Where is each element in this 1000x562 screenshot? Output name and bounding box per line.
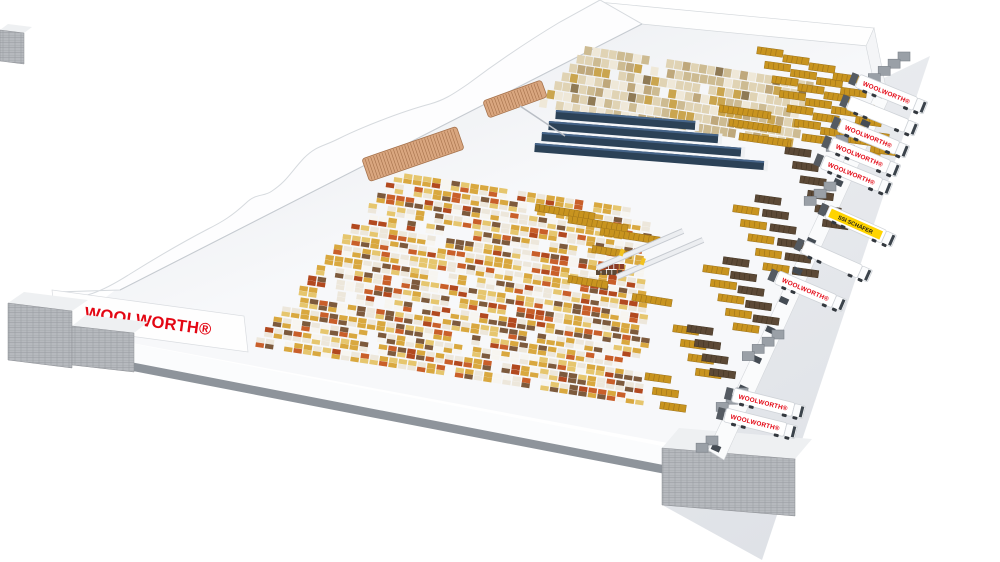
annex-block-topleft <box>0 24 32 64</box>
annex-block-southeast <box>662 428 812 516</box>
warehouse-rendering-canvas: WOOLWORTH® WOOLWORTH®WOOLWORTH®WOOLWORTH… <box>0 0 1000 562</box>
warehouse-3d-illustration: WOOLWORTH® WOOLWORTH®WOOLWORTH®WOOLWORTH… <box>0 0 1000 562</box>
